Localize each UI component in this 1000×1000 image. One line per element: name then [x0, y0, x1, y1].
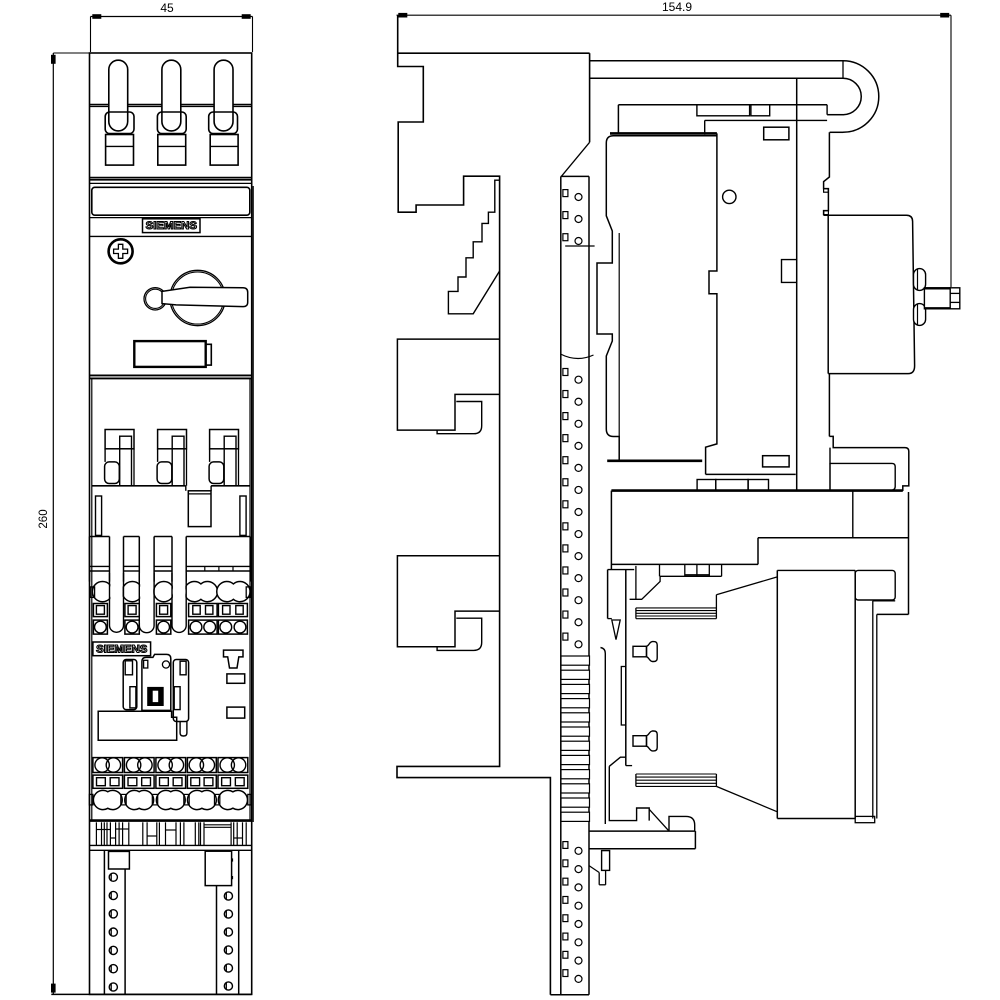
svg-text:154.9: 154.9: [662, 0, 692, 14]
svg-text:260: 260: [38, 509, 50, 528]
svg-text:SIEMENS: SIEMENS: [146, 220, 197, 232]
svg-text:SIEMENS: SIEMENS: [96, 643, 147, 655]
svg-text:45: 45: [160, 1, 174, 15]
